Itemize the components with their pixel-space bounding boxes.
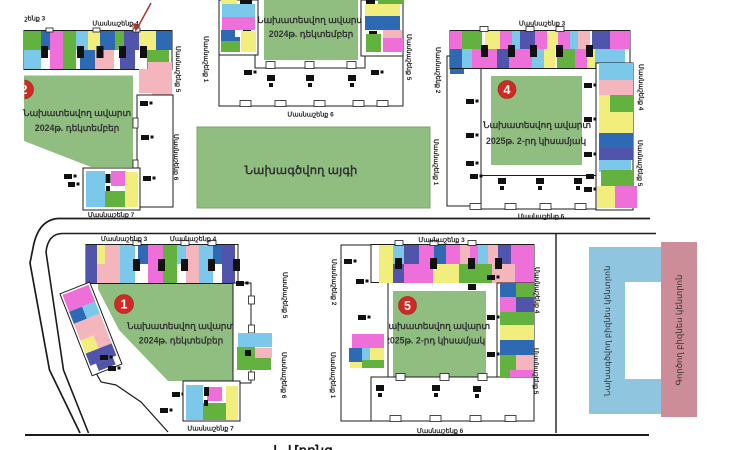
svg-text:Մասնաշենք 2: Մասնաշենք 2 — [330, 259, 337, 306]
svg-text:Մասնաշենք 4: Մասնաշենք 4 — [170, 236, 217, 243]
svg-text:Մասնաշենք 6: Մասնաշենք 6 — [280, 352, 287, 399]
svg-text:2024թ. դեկտեմբեր: 2024թ. դեկտեմբեր — [139, 336, 224, 347]
svg-text:Նախատեսվող ավարտ: Նախատեսվող ավարտ — [381, 321, 490, 332]
svg-text:Նախատեսվող ավարտ: Նախատեսվող ավարտ — [482, 120, 591, 131]
svg-text:2024թ. դեկտեմբեր: 2024թ. դեկտեմբեր — [35, 123, 120, 134]
svg-text:Նախատեսվող ավարտ: Նախատեսվող ավարտ — [256, 15, 365, 26]
svg-text:5: 5 — [404, 299, 411, 313]
svg-text:Նախատեսվող ավարտ: Նախատեսվող ավարտ — [22, 108, 131, 119]
svg-text:Մասնաշենք 7: Մասնաշենք 7 — [88, 212, 135, 219]
svg-text:Նախագծվող բիզնես կենտրոն: Նախագծվող բիզնես կենտրոն — [603, 266, 612, 397]
svg-text:Մասնաշենք 6: Մասնաշենք 6 — [518, 214, 565, 221]
svg-text:Մասնաշենք 4: Մասնաշենք 4 — [92, 21, 139, 28]
svg-text:Մասնաշենք 3: Մասնաշենք 3 — [101, 236, 148, 243]
svg-text:Մասնաշենք 3: Մասնաշենք 3 — [418, 237, 465, 244]
svg-text:Մասնաշենք 1: Մասնաշենք 1 — [329, 352, 336, 399]
svg-text:Մասնաշենք 4: Մասնաշենք 4 — [533, 267, 540, 314]
svg-text:Մասնաշենք 5: Մասնաշենք 5 — [636, 140, 643, 187]
svg-text:Մասնաշենք 6: Մասնաշենք 6 — [417, 428, 464, 435]
svg-text:Մասնաշենք 5: Մասնաշենք 5 — [405, 34, 412, 81]
svg-text:Մասնաշենք 7: Մասնաշենք 7 — [187, 426, 234, 433]
svg-text:Մասնաշենք 3: Մասնաշենք 3 — [519, 21, 566, 28]
svg-text:1: 1 — [121, 297, 128, 311]
svg-text:Նախագծվող այգի: Նախագծվող այգի — [244, 164, 358, 177]
svg-text:Մասնաշենք 5: Մասնաշենք 5 — [281, 272, 288, 319]
svg-text:Գործող բիզնես կենտրոն: Գործող բիզնես կենտրոն — [674, 275, 684, 386]
svg-text:Մասնաշենք 2: Մասնաշենք 2 — [434, 47, 441, 94]
svg-text:Նախատեսվող ավարտ: Նախատեսվող ավարտ — [126, 321, 235, 332]
svg-text:Մասնաշենք 4: Մասնաշենք 4 — [637, 64, 644, 111]
svg-text:Մասնաշենք 6: Մասնաշենք 6 — [172, 134, 179, 181]
svg-text:2025թ. 2-րդ կիսամյակ: 2025թ. 2-րդ կիսամյակ — [385, 336, 485, 347]
svg-text:Մասնաշենք 1: Մասնաշենք 1 — [202, 36, 209, 83]
svg-text:Մասնաշենք 1: Մասնաշենք 1 — [432, 139, 439, 186]
svg-text:Մասնաշենք 6: Մասնաշենք 6 — [287, 112, 334, 119]
svg-text:2025թ. 2-րդ կիսամյակ: 2025թ. 2-րդ կիսամյակ — [486, 136, 586, 147]
svg-text:2024թ. դեկտեմբեր: 2024թ. դեկտեմբեր — [269, 29, 354, 40]
svg-text:Մասնաշենք 5: Մասնաշենք 5 — [174, 46, 181, 93]
svg-text:4: 4 — [504, 83, 511, 97]
svg-text:Մասնաշենք 5: Մասնաշենք 5 — [532, 348, 539, 395]
svg-text:Լ. Մորնց: Լ. Մորնց — [273, 443, 333, 450]
